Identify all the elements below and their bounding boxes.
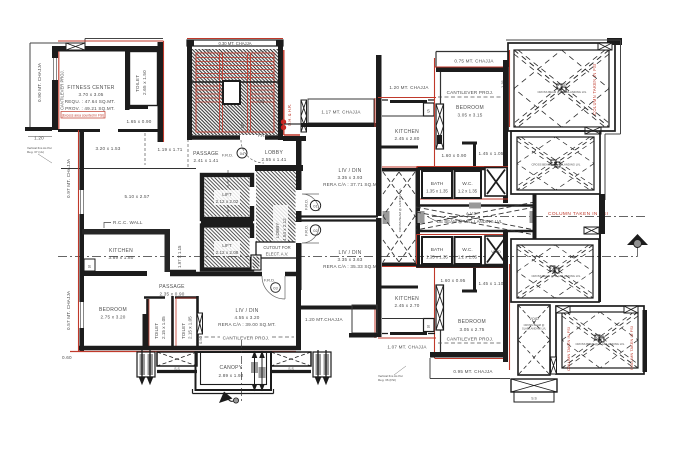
svg-text:TOILET: TOILET — [181, 323, 186, 339]
svg-text:1.50: 1.50 — [203, 49, 210, 53]
svg-text:CROSS BEAM @ SLAB/LANDING LVL: CROSS BEAM @ SLAB/LANDING LVL — [532, 163, 581, 167]
svg-text:VOID: VOID — [595, 335, 605, 339]
svg-text:CANTILEVER PROJ.: CANTILEVER PROJ. — [223, 336, 270, 341]
svg-text:CANTILEVER PROJ.: CANTILEVER PROJ. — [447, 337, 494, 342]
svg-text:TOILET: TOILET — [135, 75, 140, 92]
svg-text:COLUMN TAKEN IN FSI: COLUMN TAKEN IN FSI — [629, 326, 634, 370]
svg-text:1.17 MT. CHAJJA: 1.17 MT. CHAJJA — [321, 110, 361, 115]
svg-text:FITNESS CENTER: FITNESS CENTER — [67, 85, 114, 91]
svg-text:F.R.D.: F.R.D. — [222, 153, 233, 158]
svg-text:DE BEAM @ MID. LANDING LVL: DE BEAM @ MID. LANDING LVL — [437, 219, 503, 224]
svg-text:CROSS BEAM @ SLAB/LANDING LVL: CROSS BEAM @ SLAB/LANDING LVL — [532, 274, 581, 278]
svg-text:VOID: VOID — [551, 267, 561, 271]
svg-text:CANTILEVER PROJ.: CANTILEVER PROJ. — [447, 90, 494, 95]
svg-text:VOID: VOID — [557, 83, 567, 87]
svg-text:1.65 x 0.90: 1.65 x 0.90 — [127, 119, 152, 124]
svg-text:(Excess area counted in FSI): (Excess area counted in FSI) — [62, 113, 105, 117]
svg-text:3.70 x 3.05: 3.70 x 3.05 — [79, 92, 104, 97]
svg-text:3.89 x 1.80: 3.89 x 1.80 — [109, 255, 134, 260]
svg-text:0.75 MT. CHAJJA: 0.75 MT. CHAJJA — [454, 59, 494, 64]
svg-text:DN: DN — [258, 99, 264, 104]
svg-text:RERA C/A : 37.71 SQ.MT.: RERA C/A : 37.71 SQ.MT. — [323, 182, 381, 187]
svg-text:4.54 x 2.12: 4.54 x 2.12 — [282, 218, 287, 241]
svg-text:S: S — [427, 109, 430, 114]
svg-text:VOID: VOID — [529, 317, 539, 321]
svg-text:COLUMN TAKEN IN FSI: COLUMN TAKEN IN FSI — [566, 327, 571, 371]
svg-text:TOILET: TOILET — [154, 323, 159, 339]
svg-text:3.05 x 3.15: 3.05 x 3.15 — [458, 113, 483, 118]
svg-text:1.97 X 1.15: 1.97 X 1.15 — [177, 245, 182, 268]
svg-text:R.C.C. WALL: R.C.C. WALL — [113, 220, 143, 225]
svg-text:LOBBY: LOBBY — [275, 223, 280, 238]
svg-text:S.S: S.S — [174, 367, 180, 371]
svg-text:S: S — [427, 324, 430, 329]
svg-text:0.57 MT. CHAJJA: 0.57 MT. CHAJJA — [66, 290, 71, 330]
svg-text:LIV / DIN: LIV / DIN — [339, 250, 362, 256]
svg-text:Reg. 37 (xiv): Reg. 37 (xiv) — [27, 150, 44, 154]
svg-text:Reg. 36 (FSI): Reg. 36 (FSI) — [378, 378, 396, 382]
svg-text:LIV / DIN: LIV / DIN — [339, 168, 362, 174]
svg-text:VOID: VOID — [491, 249, 501, 254]
svg-text:2.15 x 1.05: 2.15 x 1.05 — [188, 316, 193, 339]
svg-text:PASSAGE: PASSAGE — [193, 151, 219, 157]
svg-text:A.V.S.: A.V.S. — [466, 211, 478, 216]
svg-text:1.60 x 0.90: 1.60 x 0.90 — [442, 153, 467, 158]
svg-text:O.H. & H.R.: O.H. & H.R. — [287, 104, 292, 126]
svg-text:LIFT: LIFT — [222, 243, 232, 248]
svg-text:2.45 x 2.80: 2.45 x 2.80 — [395, 136, 420, 141]
svg-text:1.19 x 1.71: 1.19 x 1.71 — [158, 147, 183, 152]
svg-text:3.20 x 1.53: 3.20 x 1.53 — [96, 146, 121, 151]
svg-text:PROV. : 49.21 SQ.MT.: PROV. : 49.21 SQ.MT. — [65, 106, 115, 111]
svg-text:F.R.D.: F.R.D. — [264, 278, 275, 283]
svg-text:4.55 x 3.20: 4.55 x 3.20 — [235, 315, 260, 320]
svg-text:0.30 MT. CHAJJA: 0.30 MT. CHAJJA — [218, 41, 251, 46]
svg-text:F.R.D.: F.R.D. — [304, 199, 309, 210]
svg-text:2.89 x 1.92: 2.89 x 1.92 — [219, 373, 244, 378]
svg-text:CUTOUT FOR: CUTOUT FOR — [263, 245, 290, 250]
svg-text:0.90 MT. CHAJJA: 0.90 MT. CHAJJA — [37, 62, 42, 102]
svg-text:CANOPY: CANOPY — [220, 365, 243, 371]
svg-text:KITCHEN: KITCHEN — [395, 296, 419, 302]
svg-text:1.07 MT. CHAJJA: 1.07 MT. CHAJJA — [387, 345, 427, 350]
svg-text:2.15 x 1.05: 2.15 x 1.05 — [161, 316, 166, 339]
svg-text:1.50: 1.50 — [259, 49, 266, 53]
svg-text:1.35 x 1.35: 1.35 x 1.35 — [426, 189, 448, 194]
svg-text:COLUMN TAKEN IN FSI: COLUMN TAKEN IN FSI — [592, 63, 597, 115]
svg-text:CROSS BEAM @: CROSS BEAM @ — [524, 323, 545, 327]
svg-text:CANTILEVER PROJ.: CANTILEVER PROJ. — [60, 70, 65, 110]
svg-text:BEDROOM: BEDROOM — [456, 105, 484, 111]
svg-text:F.R.D.: F.R.D. — [258, 133, 269, 138]
svg-text:0.97 MT. CHAJJA: 0.97 MT. CHAJJA — [66, 158, 71, 198]
svg-text:BATH: BATH — [431, 247, 444, 253]
svg-text:2.55 x 1.41: 2.55 x 1.41 — [262, 157, 287, 162]
svg-text:04: 04 — [240, 151, 245, 156]
svg-text:REQU. : 47.64 SQ.MT.: REQU. : 47.64 SQ.MT. — [65, 99, 115, 104]
svg-text:F.R.D.: F.R.D. — [304, 225, 309, 236]
svg-text:1.2 x 1.35: 1.2 x 1.35 — [458, 189, 478, 194]
svg-text:01: 01 — [313, 204, 318, 209]
svg-text:2.65 x 1.50: 2.65 x 1.50 — [142, 70, 147, 95]
svg-text:LIV / DIN: LIV / DIN — [236, 308, 259, 314]
svg-text:SLAB/LANDING LVL: SLAB/LANDING LVL — [522, 327, 547, 331]
svg-text:0.50: 0.50 — [198, 335, 203, 344]
svg-text:3.35 x 3.93: 3.35 x 3.93 — [338, 175, 363, 180]
svg-text:0.95 MT. CHAJJA: 0.95 MT. CHAJJA — [453, 369, 493, 374]
svg-text:1.60 x 0.95: 1.60 x 0.95 — [441, 278, 466, 283]
svg-text:S.S: S.S — [531, 397, 537, 401]
svg-text:CROSS BEAM @ SLAB/LANDING LVL: CROSS BEAM @ SLAB/LANDING LVL — [538, 90, 587, 94]
svg-text:02: 02 — [313, 228, 318, 233]
svg-text:CROSS BEAM @ SLAB/LANDING LVL: CROSS BEAM @ SLAB/LANDING LVL — [576, 342, 625, 346]
svg-text:KITCHEN: KITCHEN — [109, 248, 133, 254]
svg-text:LIFT: LIFT — [222, 192, 232, 197]
svg-text:RERA C/A : 39.00 SQ.MT.: RERA C/A : 39.00 SQ.MT. — [218, 322, 276, 327]
svg-text:BEDROOM: BEDROOM — [458, 319, 486, 325]
svg-text:KITCHEN: KITCHEN — [395, 129, 419, 135]
svg-text:1.45 x 1.10: 1.45 x 1.10 — [479, 281, 504, 286]
svg-text:LOBBY: LOBBY — [265, 150, 284, 156]
svg-text:BEDROOM: BEDROOM — [99, 307, 127, 313]
svg-text:2.35 x 0.90: 2.35 x 0.90 — [160, 292, 185, 297]
svg-text:CROSS BEAM @ LANDING LVL: CROSS BEAM @ LANDING LVL — [398, 188, 402, 232]
svg-text:2.12 x 2.02: 2.12 x 2.02 — [216, 199, 239, 204]
svg-text:W.C.: W.C. — [462, 247, 472, 253]
svg-text:2.12 x 2.08: 2.12 x 2.08 — [216, 250, 239, 255]
svg-text:1.2 x 1.35: 1.2 x 1.35 — [458, 255, 478, 260]
svg-text:1.45 x 1.05: 1.45 x 1.05 — [479, 151, 504, 156]
svg-text:W.C.: W.C. — [462, 181, 472, 187]
svg-text:3.35 x 3.63: 3.35 x 3.63 — [338, 257, 363, 262]
svg-text:1.20 MT. CHAJJA: 1.20 MT. CHAJJA — [389, 85, 429, 90]
svg-text:UP: UP — [240, 122, 245, 128]
svg-text:ELECT. A.V.: ELECT. A.V. — [266, 252, 289, 257]
svg-text:BATH: BATH — [431, 181, 444, 187]
svg-text:0.60: 0.60 — [62, 355, 72, 360]
svg-text:RERA C/A : 35.33 SQ.MT.: RERA C/A : 35.33 SQ.MT. — [323, 264, 381, 269]
svg-text:5.10 x 2.57: 5.10 x 2.57 — [125, 194, 150, 199]
svg-text:03: 03 — [273, 286, 278, 291]
svg-text:PASSAGE: PASSAGE — [159, 284, 185, 290]
svg-text:S: S — [88, 264, 91, 269]
svg-text:1.35 x 1.35: 1.35 x 1.35 — [426, 255, 448, 260]
svg-text:2.41 x 1.41: 2.41 x 1.41 — [194, 158, 219, 163]
svg-text:2.45 x 2.70: 2.45 x 2.70 — [395, 303, 420, 308]
svg-text:1.20 MT.CHAJJA: 1.20 MT.CHAJJA — [305, 317, 344, 322]
svg-text:2.75 x 3.20: 2.75 x 3.20 — [101, 315, 126, 320]
svg-text:S.S: S.S — [288, 367, 294, 371]
svg-text:3.05 x 2.75: 3.05 x 2.75 — [460, 327, 485, 332]
